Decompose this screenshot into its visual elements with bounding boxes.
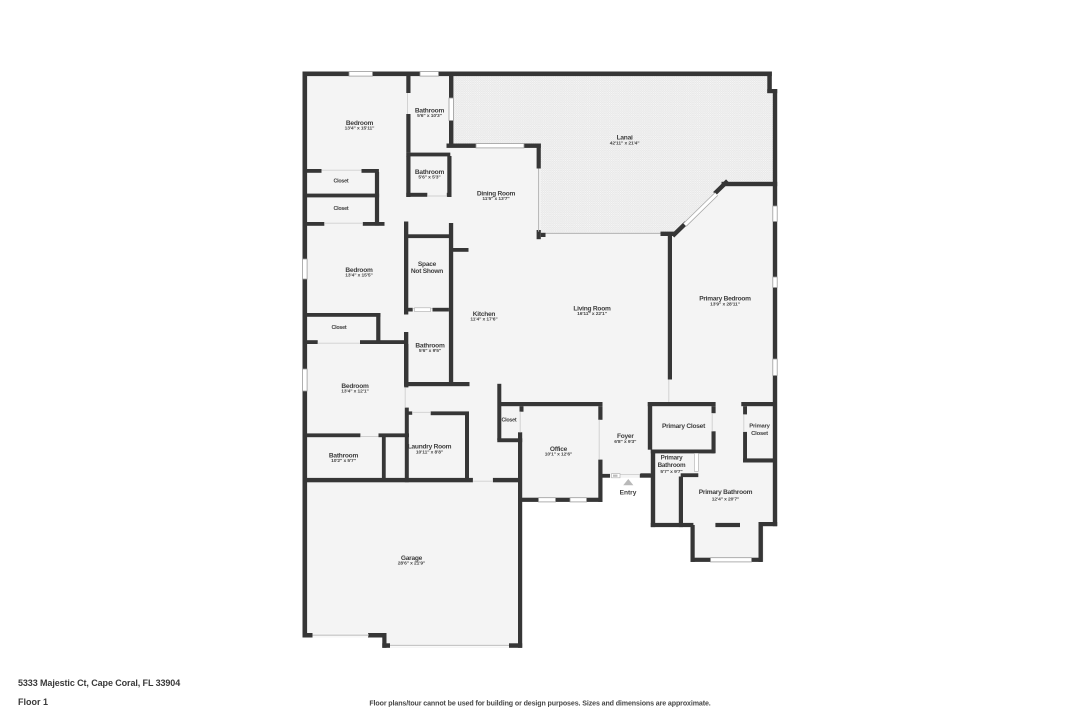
svg-text:5333 Majestic Ct, Cape Coral,: 5333 Majestic Ct, Cape Coral, FL 33904 xyxy=(18,678,180,688)
svg-text:13'9" x 28'11": 13'9" x 28'11" xyxy=(710,302,740,308)
svg-text:Bathroom: Bathroom xyxy=(658,462,686,469)
svg-text:6'8" x 9'3": 6'8" x 9'3" xyxy=(614,439,636,445)
svg-text:28'6" x 21'9": 28'6" x 21'9" xyxy=(398,561,425,567)
svg-text:Entry: Entry xyxy=(620,490,637,497)
svg-text:Primary Bathroom: Primary Bathroom xyxy=(699,489,753,496)
svg-text:Closet: Closet xyxy=(332,325,347,331)
svg-text:42'11" x 21'4": 42'11" x 21'4" xyxy=(610,140,640,146)
svg-text:5'6" x 5'3": 5'6" x 5'3" xyxy=(418,175,440,181)
svg-text:10'1" x 12'6": 10'1" x 12'6" xyxy=(545,452,572,458)
svg-text:Not Shown: Not Shown xyxy=(411,268,443,275)
svg-text:Closet: Closet xyxy=(751,431,768,437)
svg-text:11'4" x 17'6": 11'4" x 17'6" xyxy=(470,317,497,323)
svg-text:Space: Space xyxy=(418,261,437,268)
svg-text:Closet: Closet xyxy=(334,206,349,212)
svg-text:5'7" x 9'7": 5'7" x 9'7" xyxy=(660,469,682,475)
svg-text:13'4" x 15'11": 13'4" x 15'11" xyxy=(345,126,375,132)
svg-text:Primary: Primary xyxy=(749,424,770,430)
svg-text:Primary: Primary xyxy=(661,454,683,461)
svg-text:16'11" x 22'1": 16'11" x 22'1" xyxy=(577,311,607,317)
svg-text:13'4" x 15'5": 13'4" x 15'5" xyxy=(345,273,372,279)
svg-text:10'11" x 8'8": 10'11" x 8'8" xyxy=(416,449,443,455)
svg-text:5'6" x 9'5": 5'6" x 9'5" xyxy=(419,348,441,354)
svg-text:10'2" x 5'7": 10'2" x 5'7" xyxy=(331,458,356,464)
svg-text:12'4" x 20'7": 12'4" x 20'7" xyxy=(712,496,739,502)
svg-text:Floor plans/tour cannot be use: Floor plans/tour cannot be used for buil… xyxy=(369,700,710,708)
svg-text:Floor 1: Floor 1 xyxy=(18,697,48,707)
svg-text:Closet: Closet xyxy=(502,418,517,424)
svg-text:5'6" x 10'3": 5'6" x 10'3" xyxy=(417,113,442,119)
svg-text:13'4" x 12'1": 13'4" x 12'1" xyxy=(341,389,368,395)
svg-text:Primary Closet: Primary Closet xyxy=(662,423,706,430)
svg-text:Closet: Closet xyxy=(334,179,349,185)
svg-text:11'5" x 13'7": 11'5" x 13'7" xyxy=(482,196,509,202)
